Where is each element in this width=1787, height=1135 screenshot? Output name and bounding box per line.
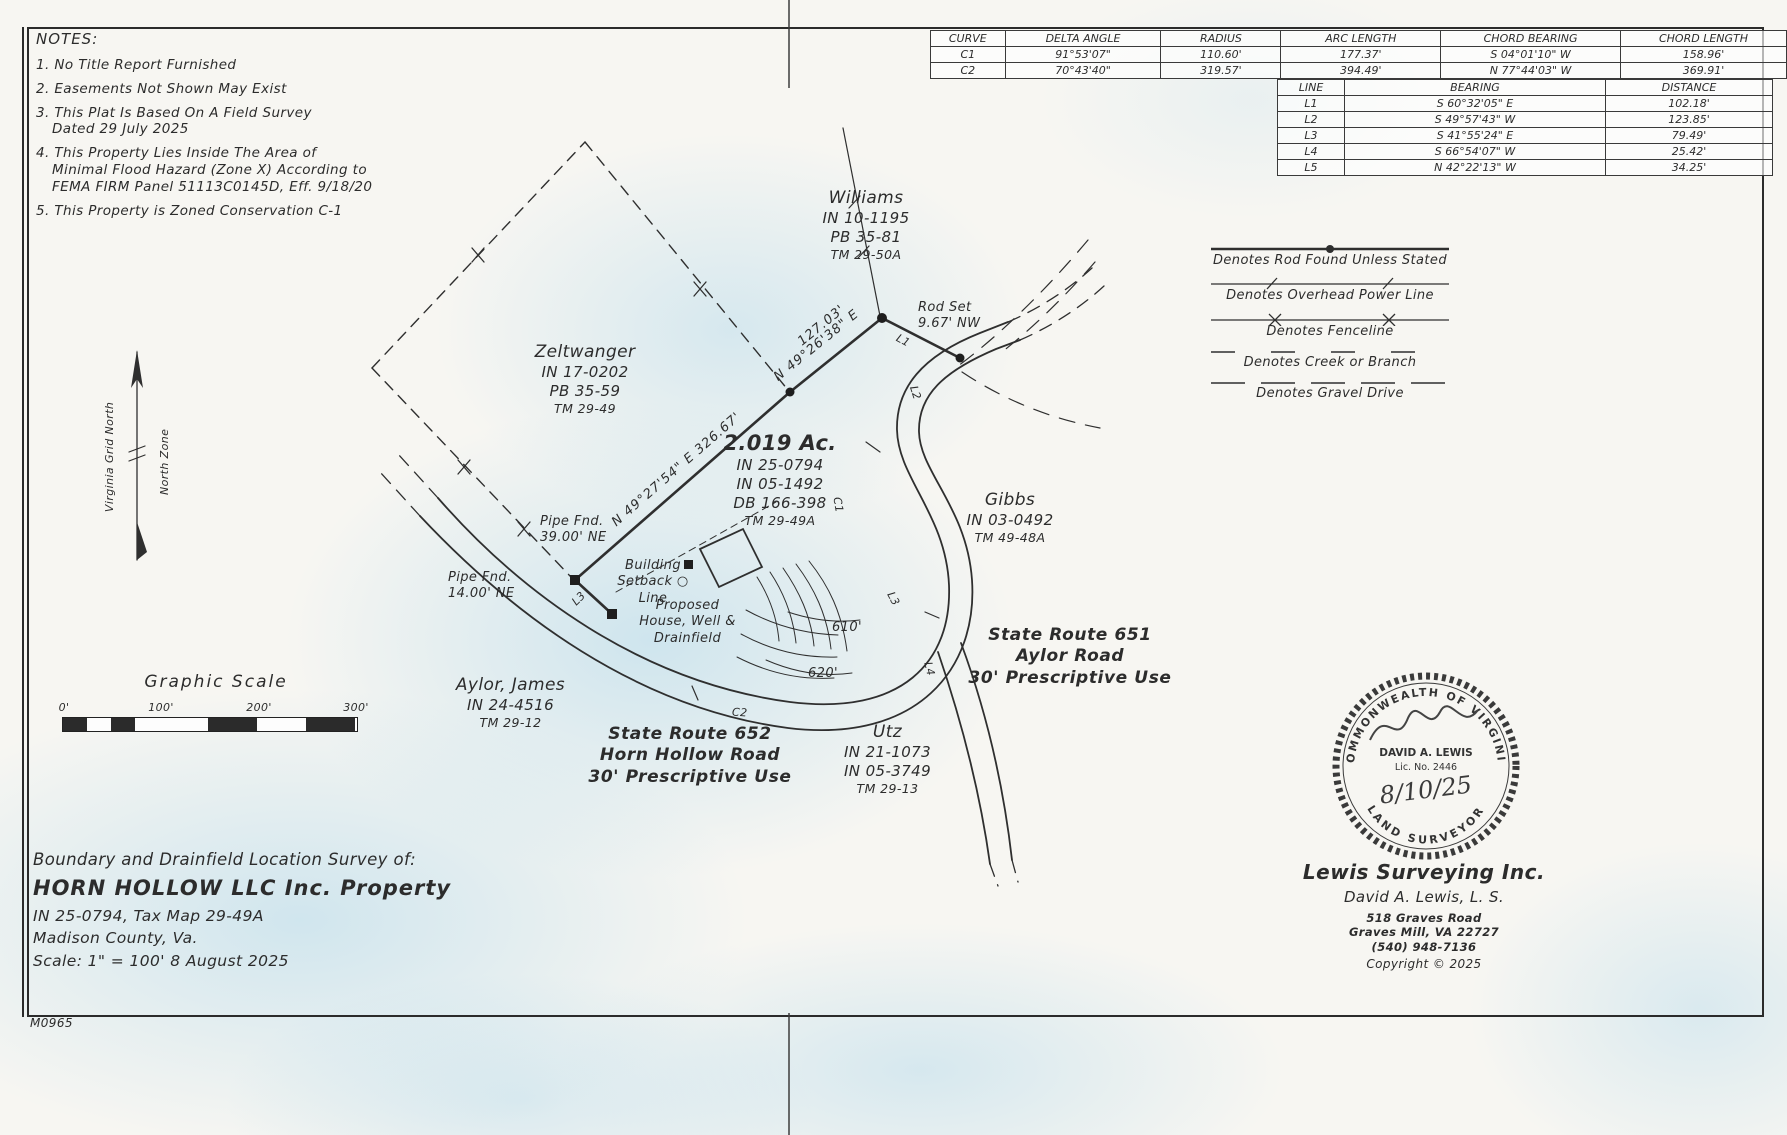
- legend-creek-label: Denotes Creek or Branch: [1190, 355, 1470, 371]
- contour-label-620: 620': [808, 666, 838, 682]
- cell: 123.85': [1606, 112, 1773, 128]
- cell: L5: [1278, 160, 1345, 176]
- cell: 34.25': [1606, 160, 1773, 176]
- cell: S 04°01'10" W: [1441, 47, 1621, 63]
- cell: 102.18': [1606, 96, 1773, 112]
- title-line-3: IN 25-0794, Tax Map 29-49A: [33, 907, 593, 926]
- surveyor-seal: COMMONWEALTH OF VIRGINIA LAND SURVEYOR D…: [1328, 668, 1524, 864]
- cell: CHORD BEARING: [1441, 31, 1621, 47]
- seal-license: Lic. No. 2446: [1395, 762, 1457, 773]
- legend-rod-found-label: Denotes Rod Found Unless Stated: [1190, 253, 1470, 269]
- tick-200: 200': [246, 701, 272, 715]
- firm-phone: (540) 948-7136: [1290, 940, 1558, 954]
- curve-table-header: CURVE DELTA ANGLE RADIUS ARC LENGTH CHOR…: [931, 31, 1787, 47]
- cell: L3: [1278, 128, 1345, 144]
- cell: S 60°32'05" E: [1345, 96, 1606, 112]
- cell: S 66°54'07" W: [1345, 144, 1606, 160]
- cell: CHORD LENGTH: [1620, 31, 1786, 47]
- graphic-scale: Graphic Scale 0' 100' 200' 300': [56, 672, 376, 732]
- cell: 91°53'07": [1005, 47, 1161, 63]
- line-row-l1: L1 S 60°32'05" E 102.18': [1278, 96, 1773, 112]
- cell: CURVE: [931, 31, 1006, 47]
- tick-300: 300': [343, 701, 369, 715]
- line-row-l3: L3 S 41°55'24" E 79.49': [1278, 128, 1773, 144]
- legend-gravel-drive-label: Denotes Gravel Drive: [1190, 386, 1470, 402]
- curve-label-c2: C2: [732, 705, 748, 720]
- parcel-label-subject: 2.019 Ac. IN 25-0794 IN 05-1492 DB 166-3…: [700, 430, 860, 528]
- firm-copyright: Copyright © 2025: [1290, 957, 1558, 972]
- cell: L2: [1278, 112, 1345, 128]
- firm-address-1: 518 Graves Road: [1290, 911, 1558, 925]
- line-row-l4: L4 S 66°54'07" W 25.42': [1278, 144, 1773, 160]
- annotation-proposed-house: Proposed House, Well & Drainfield: [615, 598, 760, 647]
- title-block: Boundary and Drainfield Location Survey …: [33, 850, 593, 974]
- firm-block: Lewis Surveying Inc. David A. Lewis, L. …: [1290, 860, 1558, 972]
- seal-graphic: COMMONWEALTH OF VIRGINIA LAND SURVEYOR D…: [1328, 668, 1524, 864]
- title-line-2: HORN HOLLOW LLC Inc. Property: [33, 875, 593, 901]
- title-line-1: Boundary and Drainfield Location Survey …: [33, 850, 593, 871]
- curve-row-c2: C2 70°43'40" 319.57' 394.49' N 77°44'03"…: [931, 63, 1787, 79]
- curve-label-c1: C1: [830, 496, 846, 514]
- parcel-label-utz: Utz IN 21-1073 IN 05-3749 TM 29-13: [800, 722, 975, 796]
- tick-0: 0': [59, 701, 70, 715]
- cell: DISTANCE: [1606, 80, 1773, 96]
- seal-handwritten-date: 8/10/25: [1378, 770, 1473, 809]
- line-table: LINE BEARING DISTANCE L1 S 60°32'05" E 1…: [1277, 79, 1773, 176]
- road-label-route652: State Route 652 Horn Hollow Road 30' Pre…: [560, 724, 820, 788]
- cell: N 77°44'03" W: [1441, 63, 1621, 79]
- seal-arc-bottom-text: LAND SURVEYOR: [1364, 803, 1487, 847]
- cell: BEARING: [1345, 80, 1606, 96]
- cell: RADIUS: [1161, 31, 1281, 47]
- firm-name: Lewis Surveying Inc.: [1290, 860, 1558, 885]
- scanned-survey-plat: { "sheet": { "id": "M0965" }, "notes": {…: [0, 0, 1787, 1135]
- legend-fenceline: Denotes Fenceline: [1190, 312, 1470, 340]
- cell: C1: [931, 47, 1006, 63]
- note-3: 3. This Plat Is Based On A Field Survey …: [36, 105, 416, 139]
- cell: N 42°22'13" W: [1345, 160, 1606, 176]
- legend-gravel-drive: Denotes Gravel Drive: [1190, 378, 1470, 402]
- cell: 110.60': [1161, 47, 1281, 63]
- cell: 319.57': [1161, 63, 1281, 79]
- cell: L4: [1278, 144, 1345, 160]
- graphic-scale-title: Graphic Scale: [56, 672, 376, 693]
- parcel-label-aylor: Aylor, James IN 24-4516 TM 29-12: [428, 675, 593, 731]
- cell: C2: [931, 63, 1006, 79]
- legend-fenceline-label: Denotes Fenceline: [1190, 324, 1470, 340]
- title-line-5: Scale: 1" = 100' 8 August 2025: [33, 952, 593, 971]
- cell: 369.91': [1620, 63, 1786, 79]
- seal-name: DAVID A. LEWIS: [1379, 747, 1472, 759]
- note-2: 2. Easements Not Shown May Exist: [36, 81, 416, 98]
- cell: LINE: [1278, 80, 1345, 96]
- contour-label-610: 610': [832, 620, 862, 636]
- note-5: 5. This Property is Zoned Conservation C…: [36, 203, 416, 220]
- north-arrow-right-label: North Zone: [158, 407, 172, 517]
- annotation-rod-set: Rod Set 9.67' NW: [918, 300, 980, 333]
- line-table-header: LINE BEARING DISTANCE: [1278, 80, 1773, 96]
- line-row-l5: L5 N 42°22'13" W 34.25': [1278, 160, 1773, 176]
- legend-power-line: Denotes Overhead Power Line: [1190, 276, 1470, 304]
- graphic-scale-ticks: 0' 100' 200' 300': [56, 701, 376, 715]
- cell: 70°43'40": [1005, 63, 1161, 79]
- notes-block: NOTES: 1. No Title Report Furnished 2. E…: [36, 30, 416, 227]
- note-4: 4. This Property Lies Inside The Area of…: [36, 145, 416, 196]
- firm-address-2: Graves Mill, VA 22727: [1290, 925, 1558, 939]
- cell: DELTA ANGLE: [1005, 31, 1161, 47]
- curve-table: CURVE DELTA ANGLE RADIUS ARC LENGTH CHOR…: [930, 30, 1787, 79]
- firm-surveyor: David A. Lewis, L. S.: [1290, 888, 1558, 907]
- cell: 394.49': [1281, 63, 1441, 79]
- note-1: 1. No Title Report Furnished: [36, 57, 416, 74]
- north-arrow: [129, 350, 147, 560]
- proposed-house-outline: [700, 529, 762, 587]
- legend: Denotes Rod Found Unless Stated Denotes …: [1190, 243, 1470, 409]
- cell: ARC LENGTH: [1281, 31, 1441, 47]
- cell: 158.96': [1620, 47, 1786, 63]
- parcel-label-williams: Williams IN 10-1195 PB 35-81 TM 29-50A: [786, 188, 946, 262]
- notes-title: NOTES:: [36, 30, 416, 49]
- title-line-4: Madison County, Va.: [33, 929, 593, 948]
- legend-power-line-label: Denotes Overhead Power Line: [1190, 288, 1470, 304]
- tick-100: 100': [148, 701, 174, 715]
- cell: 25.42': [1606, 144, 1773, 160]
- legend-rod-found: Denotes Rod Found Unless Stated: [1190, 243, 1470, 269]
- cell: S 41°55'24" E: [1345, 128, 1606, 144]
- cell: S 49°57'43" W: [1345, 112, 1606, 128]
- svg-text:LAND SURVEYOR: LAND SURVEYOR: [1364, 803, 1487, 847]
- cell: L1: [1278, 96, 1345, 112]
- cell: 79.49': [1606, 128, 1773, 144]
- cell: 177.37': [1281, 47, 1441, 63]
- annotation-pipe-found-14: Pipe Fnd. 14.00' NE: [448, 570, 514, 603]
- parcel-label-gibbs: Gibbs IN 03-0492 TM 49-48A: [930, 490, 1090, 546]
- legend-creek: Denotes Creek or Branch: [1190, 347, 1470, 371]
- line-row-l2: L2 S 49°57'43" W 123.85': [1278, 112, 1773, 128]
- road-label-route651: State Route 651 Aylor Road 30' Prescript…: [945, 625, 1195, 689]
- graphic-scale-bar: [62, 717, 358, 732]
- north-arrow-left-label: Virginia Grid North: [103, 377, 117, 537]
- parcel-label-zeltwanger: Zeltwanger IN 17-0202 PB 35-59 TM 29-49: [500, 342, 670, 416]
- curve-row-c1: C1 91°53'07" 110.60' 177.37' S 04°01'10"…: [931, 47, 1787, 63]
- sheet-number: M0965: [30, 1016, 73, 1031]
